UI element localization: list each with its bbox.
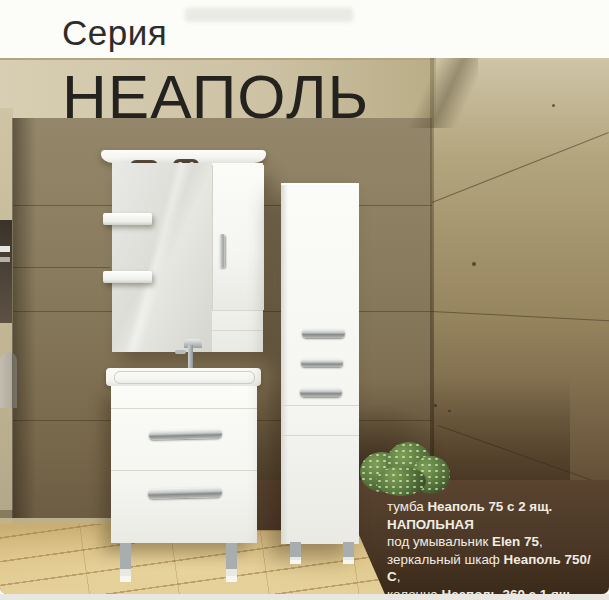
- catalog-page: Серия: [0, 0, 609, 600]
- caption-text-bold: Неаполь 360 с 1 ящ.: [442, 587, 574, 594]
- shelf-seam: [212, 330, 263, 331]
- caption-text: зеркальный шкаф: [387, 552, 504, 567]
- vanity-leg: [120, 543, 131, 582]
- wall-speck: [552, 104, 555, 107]
- series-name: НЕАПОЛЬ: [62, 61, 369, 132]
- caption-text: под умывальник: [387, 534, 492, 549]
- series-label: Серия: [62, 13, 167, 53]
- adjacent-room-doorway: [0, 220, 12, 323]
- column-cabinet: [281, 183, 359, 544]
- drawer-handle: [148, 487, 222, 499]
- plant-foliage: [376, 466, 426, 496]
- caption-block: тумба Неаполь 75 с 2 ящ. НАПОЛЬНАЯ под у…: [387, 498, 603, 594]
- side-shelf: [103, 213, 152, 225]
- bathroom-photo: НЕАПОЛЬ тумба Неаполь 75 с 2 ящ. НАПОЛЬН…: [0, 58, 609, 594]
- caption-text: ,: [397, 569, 401, 584]
- caption-line: тумба Неаполь 75 с 2 ящ. НАПОЛЬНАЯ: [387, 498, 603, 533]
- mirror-reflection: [112, 163, 212, 352]
- plant-texture: [376, 466, 426, 496]
- caption-text: колонна: [387, 587, 442, 594]
- caption-text: ,: [539, 534, 543, 549]
- column-handle: [300, 388, 342, 397]
- corner-shadow: [408, 58, 478, 128]
- towel-bar: [0, 257, 10, 262]
- drawer-handle: [149, 429, 222, 440]
- wall-hook: [472, 262, 476, 266]
- watermark-smudge: [185, 8, 353, 22]
- page-bottom-edge: [0, 594, 609, 600]
- caption-text: тумба: [387, 499, 427, 514]
- caption-line: под умывальник Elen 75,: [387, 533, 603, 551]
- vanity-leg: [226, 543, 237, 582]
- wall-speck: [448, 410, 451, 412]
- sink-top: [106, 368, 261, 386]
- faucet-spout: [184, 339, 202, 348]
- door-seam: [281, 405, 359, 406]
- shelf-seam: [212, 310, 263, 311]
- drawer-bottom: [111, 470, 257, 543]
- caption-text-bold: Elen 75: [492, 534, 539, 549]
- column-handle: [302, 329, 345, 338]
- column-left-shade: [281, 185, 288, 544]
- column-leg: [343, 542, 354, 564]
- column-handle: [301, 359, 343, 367]
- mirror: [112, 163, 212, 352]
- mirror-cabinet: [112, 163, 263, 352]
- caption-line: зеркальный шкаф Неаполь 750/С,: [387, 551, 603, 586]
- towel-bar: [0, 246, 10, 252]
- door-seam: [281, 435, 359, 436]
- vanity-cabinet: [111, 386, 257, 543]
- faucet-lever: [175, 350, 186, 354]
- caption-line: колонна Неаполь 360 с 1 ящ.: [387, 586, 603, 594]
- sink-basin-rim: [114, 371, 255, 384]
- side-shelf: [103, 271, 152, 283]
- column-leg: [290, 542, 301, 564]
- pillar-edge-shadow: [12, 118, 36, 530]
- plant: [356, 438, 452, 496]
- wall-speck: [434, 404, 437, 407]
- door-handle: [219, 234, 225, 268]
